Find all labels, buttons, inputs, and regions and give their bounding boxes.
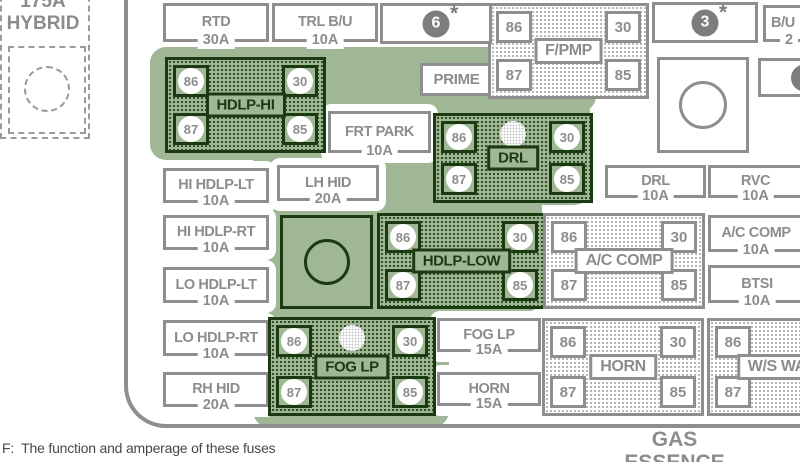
relay-pin-87: 87 <box>496 59 532 91</box>
relay-pin-87: 87 <box>173 113 209 145</box>
pin-number: 87 <box>178 116 204 142</box>
fuse-amp-rating: 10A <box>361 143 398 160</box>
relay-name-plate: F/PMP <box>534 38 603 64</box>
fuse-label: LO HDLP-RT <box>174 330 258 347</box>
relay-socket <box>657 57 749 153</box>
asterisk-mark: * <box>719 1 727 25</box>
relay-name-plate: DRL <box>487 146 539 171</box>
fuse-amp-rating: 10A <box>637 188 674 205</box>
hybrid-inner-dashed-box <box>8 46 86 134</box>
fuse-amp-rating: 10A <box>198 293 235 310</box>
prime-label-box: PRIME <box>420 63 493 96</box>
relay-pin-86: 86 <box>276 325 312 357</box>
fuse-label: LH HID <box>305 175 351 192</box>
fuse-amp-rating: 20A <box>310 191 347 208</box>
fuse-amp-rating: 10A <box>737 188 774 205</box>
relay-pin-30: 30 <box>660 326 696 358</box>
fuse-label: HI HDLP-LT <box>178 177 253 194</box>
fuse-amp-rating: 10A <box>198 240 235 257</box>
fuse-lo-hdlp-lt: LO HDLP-LT10A <box>163 267 269 303</box>
fuse-horn: HORN15A <box>437 372 541 406</box>
relay-pin-30: 30 <box>605 11 641 43</box>
relay-pin-87: 87 <box>385 269 421 301</box>
fuse-ac-comp: A/C COMP10A <box>708 215 800 252</box>
fuse-amp-rating: 10A <box>738 242 775 259</box>
hybrid-amp: 175A <box>0 0 86 13</box>
pin-number: 30 <box>287 68 313 94</box>
fuse-amp-rating: 10A <box>198 346 235 363</box>
pin-number: 86 <box>281 328 307 354</box>
relay-ws-wash: 86308785W/S WASH <box>707 318 800 416</box>
fuse-box-diagram: 175A HYBRID PRIME GAS ESSENCE F: The fun… <box>0 0 800 462</box>
badge-partial <box>758 58 800 97</box>
pin-number: 85 <box>507 272 533 298</box>
relay-name-plate: HORN <box>589 354 657 380</box>
gas-line: GAS <box>597 428 752 451</box>
fuse-frt-park: FRT PARK10A <box>328 111 431 153</box>
relay-pin-85: 85 <box>549 163 585 195</box>
pin-number: 85 <box>287 116 313 142</box>
fuse-amp-rating: 2 <box>780 32 798 49</box>
relay-dot-circle-icon <box>500 121 526 147</box>
circled-number-icon <box>791 64 800 91</box>
relay-pin-85: 85 <box>605 59 641 91</box>
fuse-amp-rating: 10A <box>307 32 344 49</box>
asterisk-mark: * <box>450 2 458 26</box>
relay-name-plate: A/C COMP <box>575 248 674 274</box>
pin-number: 86 <box>390 224 416 250</box>
relay-name-plate: HDLP-HI <box>205 93 285 118</box>
fuse-label: A/C COMP <box>721 225 790 242</box>
relay-hdlp-low: 86308785HDLP-LOW <box>377 213 546 309</box>
relay-pin-86: 86 <box>441 121 477 153</box>
relay-pin-87: 87 <box>550 376 586 408</box>
relay-horn: 86308785HORN <box>542 318 704 416</box>
fuse-hi-hdlp-rt: HI HDLP-RT10A <box>163 215 269 250</box>
relay-name-plate: HDLP-LOW <box>412 249 512 274</box>
relay-ac-comp: 86308785A/C COMP <box>543 213 705 309</box>
fuse-label: LO HDLP-LT <box>175 277 256 294</box>
fuse-amp-rating: 15A <box>471 396 508 413</box>
prime-label: PRIME <box>433 71 479 88</box>
socket-circle-icon <box>304 239 350 285</box>
fuse-label: HI HDLP-RT <box>177 224 255 241</box>
fuse-bu: B/U2 <box>763 5 800 42</box>
pin-number: 30 <box>397 328 423 354</box>
hybrid-label: HYBRID <box>0 13 86 35</box>
fuse-btsi: BTSI10A <box>708 265 800 303</box>
pin-number: 86 <box>446 124 472 150</box>
essence-line: ESSENCE <box>597 451 752 462</box>
fuse-label: B/U <box>766 15 795 32</box>
fuse-drl: DRL10A <box>605 165 706 198</box>
fuse-label: HORN <box>468 381 509 398</box>
fuse-amp-rating: 10A <box>198 193 235 210</box>
fuse-amp-rating: 30A <box>198 32 235 49</box>
relay-f-pmp: 86308785F/PMP <box>488 3 649 99</box>
relay-name-plate: W/S WASH <box>737 354 800 380</box>
pin-number: 87 <box>390 272 416 298</box>
fuse-amp-rating: 15A <box>471 342 508 359</box>
fuse-label: RH HID <box>192 381 240 398</box>
relay-pin-85: 85 <box>392 376 428 408</box>
pin-number: 87 <box>446 166 472 192</box>
pin-number: 87 <box>281 379 307 405</box>
fuse-rvc: RVC10A <box>708 165 800 198</box>
hybrid-circle-icon <box>24 66 70 112</box>
fuse-amp-rating: 20A <box>198 397 235 414</box>
circled-number-icon: 6 <box>423 10 450 37</box>
fuse-trl-bu: TRL B/U10A <box>272 3 378 42</box>
relay-pin-87: 87 <box>715 376 751 408</box>
pin-number: 86 <box>178 68 204 94</box>
relay-pin-85: 85 <box>660 376 696 408</box>
relay-socket <box>280 215 373 309</box>
circled-number-icon: 3 <box>692 9 719 36</box>
fuse-lo-hdlp-rt: LO HDLP-RT10A <box>163 320 269 356</box>
fuse-amp-rating: 10A <box>739 293 776 310</box>
fuse-rtd: RTD30A <box>163 3 269 42</box>
relay-pin-30: 30 <box>282 65 318 97</box>
fuse-label: FRT PARK <box>345 124 414 141</box>
relay-pin-30: 30 <box>392 325 428 357</box>
relay-name-plate: FOG LP <box>314 354 389 379</box>
relay-pin-86: 86 <box>496 11 532 43</box>
socket-circle-icon <box>679 81 727 129</box>
fuse-label: BTSI <box>741 276 772 293</box>
fuse-label: FOG LP <box>463 327 515 344</box>
pin-number: 30 <box>507 224 533 250</box>
fuse-lh-hid: LH HID20A <box>277 165 379 201</box>
relay-pin-85: 85 <box>502 269 538 301</box>
fuse-label: TRL B/U <box>298 14 352 31</box>
footnote: F: The function and amperage of these fu… <box>2 440 275 456</box>
pin-number: 85 <box>397 379 423 405</box>
relay-dot-circle-icon <box>339 325 365 351</box>
relay-pin-87: 87 <box>441 163 477 195</box>
relay-pin-30: 30 <box>549 121 585 153</box>
relay-pin-86: 86 <box>173 65 209 97</box>
fuse-rh-hid: RH HID20A <box>163 372 269 407</box>
relay-fog-lp: 86308785FOG LP <box>268 317 436 416</box>
relay-drl: 86308785DRL <box>433 113 593 203</box>
relay-pin-86: 86 <box>550 326 586 358</box>
fuse-hi-hdlp-lt: HI HDLP-LT10A <box>163 168 269 203</box>
badge-6: 6* <box>380 3 492 44</box>
relay-pin-87: 87 <box>276 376 312 408</box>
pin-number: 85 <box>554 166 580 192</box>
gas-essence-caption: GAS ESSENCE <box>597 428 752 462</box>
badge-3: 3* <box>652 2 758 43</box>
pin-number: 30 <box>554 124 580 150</box>
fuse-fog-lp: FOG LP15A <box>437 318 541 352</box>
relay-pin-85: 85 <box>282 113 318 145</box>
relay-hdlp-hi: 86308785HDLP-HI <box>165 57 326 153</box>
fuse-label: RTD <box>202 14 231 31</box>
